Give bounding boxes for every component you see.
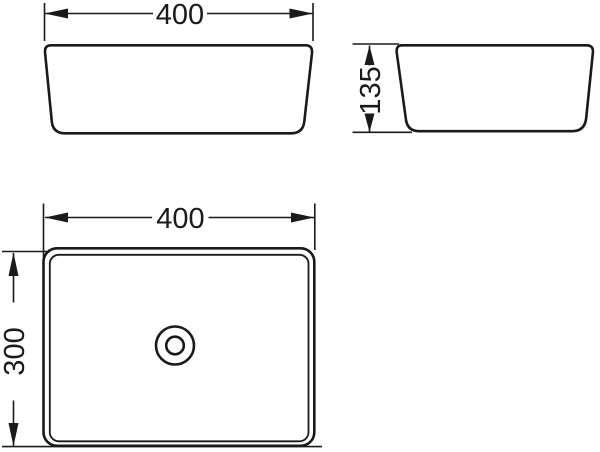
depth-dim-arrow-up-icon	[9, 253, 19, 276]
depth-dim-arrow-down-icon	[9, 423, 19, 446]
top-depth-label: 300	[0, 327, 31, 375]
side-basin-outline	[397, 45, 593, 131]
top-dim-arrow-right-icon	[291, 213, 314, 223]
side-view: 135	[353, 44, 593, 132]
front-dim-arrow-right-icon	[290, 9, 314, 19]
side-dim-arrow-up-icon	[365, 46, 375, 66]
top-width-label: 400	[156, 203, 204, 235]
drain-inner-circle	[166, 337, 184, 355]
top-view: 400 300	[0, 203, 322, 447]
drain-outer-circle	[156, 327, 194, 365]
front-dim-arrow-left-icon	[45, 9, 69, 19]
top-dim-arrow-left-icon	[45, 213, 68, 223]
front-width-label: 400	[156, 0, 204, 31]
top-basin-inner-rim	[50, 255, 309, 441]
top-basin-outer-rim	[44, 248, 315, 445]
side-height-label: 135	[355, 66, 387, 114]
front-width-dimension: 400	[45, 0, 314, 31]
technical-drawing: 400 135 400	[0, 0, 600, 452]
front-view: 400	[45, 0, 314, 133]
drain	[156, 327, 194, 365]
top-depth-dimension: 300	[0, 253, 31, 447]
front-basin-outline	[45, 45, 312, 133]
side-height-dimension: 135	[355, 46, 387, 133]
top-width-dimension: 400	[45, 203, 315, 235]
side-dim-arrow-down-icon	[365, 114, 375, 133]
